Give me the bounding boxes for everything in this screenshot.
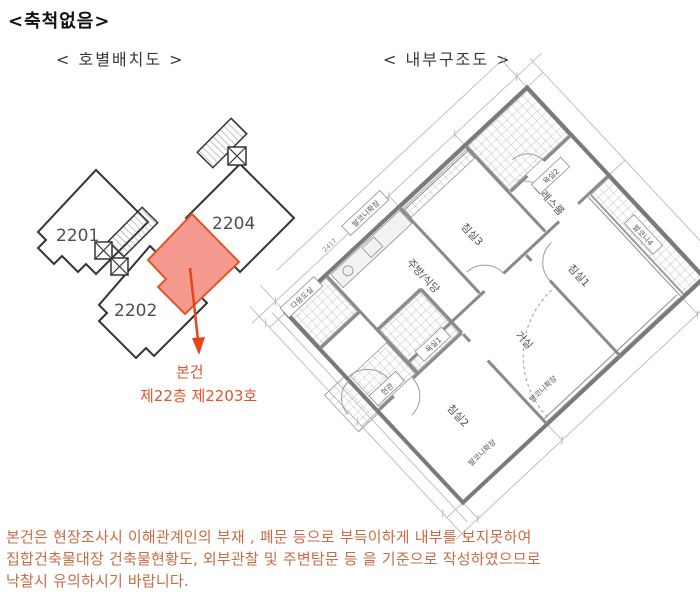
bedroom3-window-strip (403, 150, 474, 217)
stair-core-top (197, 118, 246, 167)
disclaimer-line-3: 낙찰시 유의하시기 바랍니다. (6, 570, 698, 592)
balcony-extension-bottom1-label: 발코니확장 (527, 373, 559, 404)
living-room-label: 거실 (513, 329, 535, 351)
unit-layout-plan: 2201 2202 2204 본건 제22층 제2203호 (38, 118, 294, 405)
unit-2201-label: 2201 (56, 226, 99, 246)
callout-line1: 본건 (176, 363, 204, 381)
floor-plan: 2417 (237, 37, 700, 548)
bedroom2-label: 침실2 (444, 402, 471, 429)
callout-arrowhead-icon (192, 337, 205, 355)
bedroom3-label: 침실3 (458, 221, 485, 248)
unit-2202-label: 2202 (114, 301, 157, 321)
unit-2204-label: 2204 (212, 214, 255, 234)
disclaimer-paragraph: 본건은 현장조사시 이해관계인의 부재 , 폐문 등으로 부득이하게 내부를 보… (6, 526, 698, 592)
page: <축척없음> < 호별배치도 > < 내부구조도 > (0, 0, 700, 602)
plans-canvas: 2417 (0, 0, 700, 602)
balcony-extension-bottom2-label: 발코니확장 (466, 437, 498, 468)
disclaimer-line-2: 집합건축물대장 건축물현황도, 외부관찰 및 주변탐문 등 을 기준으로 작성하… (6, 548, 698, 570)
disclaimer-line-1: 본건은 현장조사시 이해관계인의 부재 , 폐문 등으로 부득이하게 내부를 보… (6, 526, 698, 548)
callout-line2: 제22층 제2203호 (140, 387, 257, 405)
balcony-extension-top-label: 발코니확장 (350, 198, 382, 229)
kitchen-counter (331, 210, 412, 287)
utility-room-floor (288, 278, 357, 346)
bedroom1-label: 침실1 (565, 262, 592, 289)
